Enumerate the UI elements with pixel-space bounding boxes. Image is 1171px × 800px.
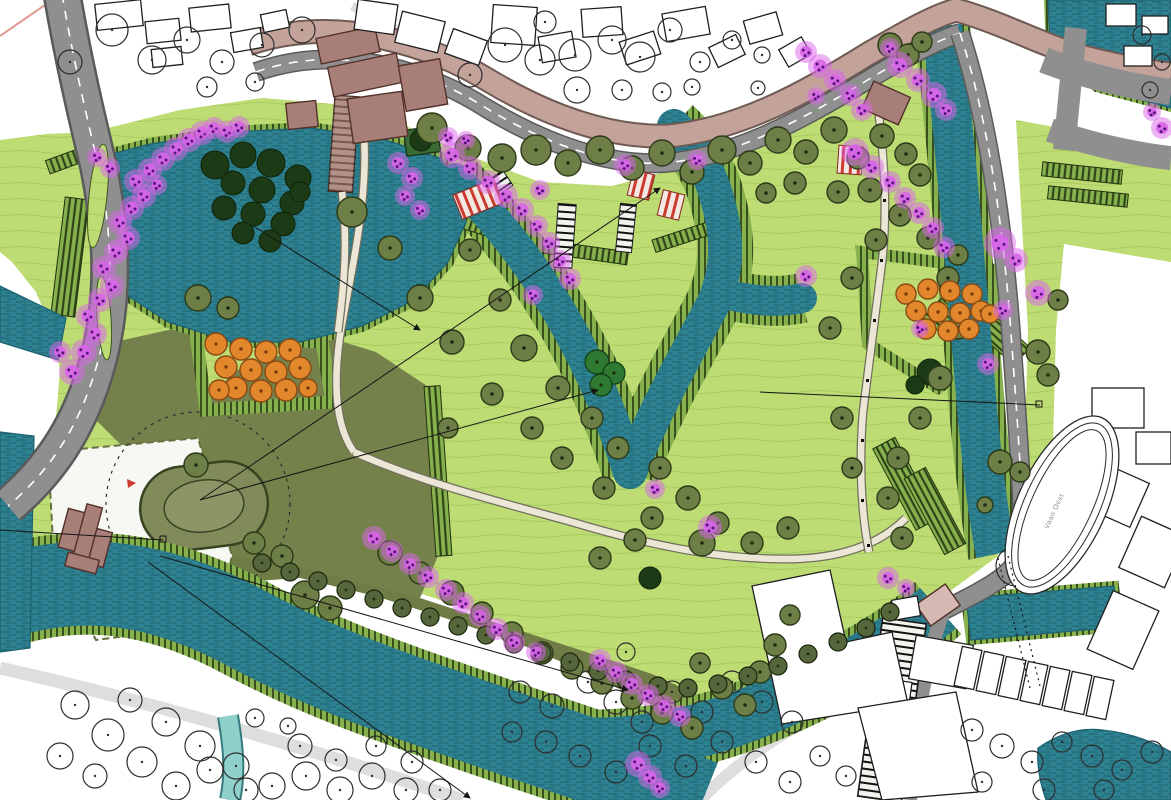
blossom-tree [152, 170, 155, 173]
blossom-tree [649, 694, 652, 697]
blossom-tree [520, 213, 523, 216]
blossom-tree [822, 66, 825, 69]
blossom-tree [185, 137, 188, 140]
park-tree [832, 128, 836, 132]
blossom-tree [478, 618, 481, 621]
blossom-tree [111, 167, 114, 170]
blossom-tree [401, 193, 404, 196]
blossom-tree [802, 49, 805, 52]
blossom-tree [410, 180, 413, 183]
park-tree [698, 661, 702, 665]
blossom-tree [524, 210, 527, 213]
park-tree [388, 246, 392, 250]
park-tree [764, 191, 768, 195]
blossom-tree [56, 349, 59, 352]
context-tree [254, 81, 256, 83]
blossom-tree [656, 785, 659, 788]
blossom-tree [462, 137, 465, 140]
blossom-tree [833, 82, 836, 85]
blossom-tree [486, 185, 489, 188]
park-tree [590, 416, 594, 420]
blossom-tree [467, 139, 470, 142]
context-tree [1001, 745, 1003, 747]
orchard-tree [224, 365, 227, 368]
park-tree [690, 726, 694, 730]
dense-shrub [249, 177, 275, 203]
blossom-tree [940, 244, 943, 247]
blossom-tree [187, 143, 190, 146]
blossom-tree [1153, 111, 1156, 114]
blossom-tree [114, 255, 117, 258]
blossom-tree [100, 265, 103, 268]
blossom-tree [200, 136, 203, 139]
blossom-tree [394, 160, 397, 163]
blossom-tree [676, 713, 679, 716]
blossom-tree [538, 192, 541, 195]
context-tree [544, 21, 546, 23]
park-tree [616, 446, 620, 450]
blossom-tree [140, 193, 143, 196]
context-tree [587, 681, 589, 683]
park-tree [498, 298, 502, 302]
blossom-tree [886, 45, 889, 48]
blossom-tree [481, 615, 484, 618]
blossom-tree [984, 361, 987, 364]
context-tree [755, 761, 757, 763]
blossom-tree [86, 319, 89, 322]
park-tree [896, 456, 900, 460]
blossom-tree [888, 50, 891, 53]
context-tree [69, 61, 71, 63]
blossom-tree [886, 179, 889, 182]
park-tree [560, 456, 564, 460]
hedge-bush [747, 675, 750, 678]
blossom-tree [97, 334, 100, 337]
blossom-tree [884, 575, 887, 578]
blossom-tree [126, 241, 129, 244]
blossom-tree [212, 130, 215, 133]
blossom-tree [159, 156, 162, 159]
park-tree [743, 703, 747, 707]
context-tree [615, 701, 617, 703]
context-tree [579, 755, 581, 757]
blossom-tree [678, 718, 681, 721]
park-tree [303, 593, 307, 597]
blossom-tree [921, 328, 924, 331]
blossom-tree [67, 368, 70, 371]
blossom-tree [446, 139, 449, 142]
blossom-tree [116, 219, 119, 222]
context-tree [59, 755, 61, 757]
blossom-tree [901, 195, 904, 198]
context-tree [74, 704, 76, 706]
blossom-tree [658, 790, 661, 793]
blossom-tree [630, 686, 633, 689]
blossom-tree [406, 561, 409, 564]
blossom-tree [858, 107, 861, 110]
blossom-tree [93, 337, 96, 340]
blossom-tree [929, 91, 932, 94]
hedge-bush [289, 571, 292, 574]
blossom-tree [1148, 109, 1151, 112]
park-tree [886, 496, 890, 500]
park-tree [660, 151, 664, 155]
blossom-tree [112, 249, 115, 252]
blossom-tree [413, 177, 416, 180]
blossom-tree [903, 200, 906, 203]
dense-shrub [639, 567, 661, 589]
orchard-tree [946, 329, 949, 332]
blossom-tree [915, 210, 918, 213]
blossom-tree [403, 198, 406, 201]
orchard-tree [306, 386, 309, 389]
park-tree [226, 306, 230, 310]
blossom-tree [1018, 260, 1021, 263]
context-tree [141, 761, 143, 763]
dense-shrub [906, 376, 924, 394]
blossom-tree [106, 165, 109, 168]
orchard-tree [970, 292, 973, 295]
context-tree [245, 789, 247, 791]
blossom-tree [132, 178, 135, 181]
context-tree [789, 781, 791, 783]
blossom-tree [633, 683, 636, 686]
context-tree [1103, 789, 1105, 791]
blossom-tree [110, 289, 113, 292]
context-tree [375, 745, 377, 747]
blossom-tree [508, 196, 511, 199]
blossom-tree [706, 524, 709, 527]
blossom-tree [223, 129, 226, 132]
park-tree [850, 276, 854, 280]
blossom-tree [623, 167, 626, 170]
orchard-tree [288, 348, 291, 351]
blossom-tree [142, 199, 145, 202]
blossom-tree [999, 307, 1002, 310]
park-tree [998, 460, 1002, 464]
blossom-tree [128, 205, 131, 208]
context-tree [576, 89, 578, 91]
blossom-tree [464, 142, 467, 145]
blossom-tree [914, 77, 917, 80]
blossom-tree [476, 613, 479, 616]
blossom-tree [836, 79, 839, 82]
blossom-tree [130, 238, 133, 241]
context-tree [685, 765, 687, 767]
blossom-tree [1014, 263, 1017, 266]
park-tree [350, 210, 354, 214]
blossom-tree [891, 181, 894, 184]
park-tree [658, 466, 662, 470]
context-tree [411, 761, 413, 763]
park-tree [1056, 298, 1060, 302]
blossom-tree [464, 602, 467, 605]
blossom-tree [461, 605, 464, 608]
hedge-bush [717, 683, 720, 686]
blossom-tree [235, 124, 238, 127]
context-tree [845, 775, 847, 777]
stream [228, 716, 233, 800]
blossom-tree [541, 189, 544, 192]
blossom-tree [889, 577, 892, 580]
blossom-tree [114, 286, 117, 289]
blossom-tree [568, 281, 571, 284]
blossom-tree [571, 278, 574, 281]
hedge-bush [373, 598, 376, 601]
blossom-tree [947, 109, 950, 112]
context-tree [574, 54, 576, 56]
context-tree [439, 789, 441, 791]
blossom-tree [138, 181, 141, 184]
blossom-tree [444, 134, 447, 137]
blossom-tree [807, 275, 810, 278]
park-tree [686, 496, 690, 500]
context-tree [301, 29, 303, 31]
park-tree [788, 613, 792, 617]
blossom-tree [601, 659, 604, 662]
blossom-tree [936, 95, 939, 98]
park-tree [530, 426, 534, 430]
park-tree [522, 346, 526, 350]
blossom-tree [58, 354, 61, 357]
specimen-tree [595, 360, 598, 363]
dense-shrub [232, 222, 254, 244]
park-tree [194, 463, 198, 467]
blossom-tree [490, 182, 493, 185]
context-tree [129, 699, 131, 701]
blossom-tree [665, 705, 668, 708]
context-tree [107, 734, 109, 736]
blossom-tree [851, 94, 854, 97]
blossom-tree [561, 260, 564, 263]
context-tree [981, 781, 983, 783]
blossom-tree [198, 130, 201, 133]
blossom-tree [535, 228, 538, 231]
blossom-tree [424, 574, 427, 577]
context-tree [761, 54, 763, 56]
blossom-tree [146, 167, 149, 170]
orchard-tree [936, 310, 939, 313]
masterplan-image: Vaan Oost [0, 0, 1171, 800]
blossom-tree [945, 246, 948, 249]
blossom-tree [1158, 125, 1161, 128]
blossom-tree [146, 196, 149, 199]
blossom-tree [818, 69, 821, 72]
park-tree [850, 466, 854, 470]
blossom-tree [529, 292, 532, 295]
park-tree [750, 541, 754, 545]
park-tree [918, 416, 922, 420]
context-tree [669, 29, 671, 31]
context-tree [405, 789, 407, 791]
blossom-tree [547, 245, 550, 248]
context-tree [621, 89, 623, 91]
park-tree [880, 134, 884, 138]
blossom-tree [874, 167, 877, 170]
blossom-tree [95, 159, 98, 162]
blossom-tree [812, 93, 815, 96]
blossom-tree [860, 112, 863, 115]
orchard-tree [234, 386, 237, 389]
context-tree [371, 775, 373, 777]
blossom-tree [172, 146, 175, 149]
blossom-tree [617, 671, 620, 674]
blossom-tree [916, 326, 919, 329]
blossom-tree [421, 209, 424, 212]
blossom-tree [888, 184, 891, 187]
blossom-tree [1035, 296, 1038, 299]
blossom-tree [1003, 243, 1006, 246]
context-tree [519, 691, 521, 693]
blossom-tree [153, 182, 156, 185]
context-tree [1141, 34, 1143, 36]
context-tree [1061, 741, 1063, 743]
context-tree [1043, 789, 1045, 791]
blossom-tree [902, 65, 905, 68]
blossom-tree [942, 107, 945, 110]
blossom-tree [459, 600, 462, 603]
context-tree [649, 745, 651, 747]
blossom-tree [376, 538, 379, 541]
context-tree [971, 729, 973, 731]
context-tree [699, 61, 701, 63]
blossom-tree [1163, 127, 1166, 130]
blossom-tree [612, 669, 615, 672]
park-tree [836, 190, 840, 194]
context-tree [1161, 61, 1163, 63]
park-tree [758, 670, 762, 674]
hedge-bush [865, 627, 868, 630]
blossom-tree [106, 268, 109, 271]
blossom-tree [536, 187, 539, 190]
park-tree [280, 554, 284, 558]
blossom-tree [804, 54, 807, 57]
park-tree [468, 248, 472, 252]
context-tree [221, 61, 223, 63]
park-tree [773, 643, 777, 647]
blossom-tree [662, 708, 665, 711]
park-tree [598, 148, 602, 152]
blossom-tree [406, 195, 409, 198]
blossom-tree [96, 297, 99, 300]
park-tree [918, 173, 922, 177]
orchard-tree [298, 366, 301, 369]
dense-shrub [290, 182, 310, 202]
park-tree [328, 606, 332, 610]
context-tree [209, 769, 211, 771]
blossom-tree [661, 787, 664, 790]
orchard-tree [217, 388, 220, 391]
blossom-tree [802, 273, 805, 276]
hedge-bush [317, 580, 320, 583]
park-tree [196, 296, 200, 300]
blossom-tree [997, 247, 1000, 250]
blossom-tree [429, 576, 432, 579]
blossom-tree [653, 491, 656, 494]
blossom-tree [850, 148, 853, 151]
park-tree [900, 536, 904, 540]
context-tree [731, 39, 733, 41]
hedge-bush [261, 562, 264, 565]
orchard-tree [904, 292, 907, 295]
blossom-tree [929, 225, 932, 228]
blossom-tree [372, 541, 375, 544]
context-tree [671, 691, 673, 693]
context-tree [235, 765, 237, 767]
context-tree [1031, 761, 1033, 763]
blossom-tree [681, 715, 684, 718]
blossom-tree [931, 230, 934, 233]
blossom-tree [502, 193, 505, 196]
blossom-tree [466, 165, 469, 168]
blossom-tree [545, 240, 548, 243]
blossom-tree [532, 649, 535, 652]
park-tree [418, 296, 422, 300]
park-tree [450, 340, 454, 344]
orchard-tree [284, 388, 287, 391]
blossom-tree [454, 155, 457, 158]
dense-shrub [230, 142, 256, 168]
hedge-bush [777, 665, 780, 668]
context-tree [206, 86, 208, 88]
park-tree [556, 386, 560, 390]
blossom-tree [1040, 293, 1043, 296]
masterplan-canvas: Vaan Oost [0, 0, 1171, 800]
blossom-tree [442, 587, 445, 590]
blossom-tree [648, 780, 651, 783]
blossom-tree [1150, 114, 1153, 117]
context-tree [305, 775, 307, 777]
park-tree [840, 416, 844, 420]
park-tree [566, 161, 570, 165]
blossom-tree [155, 187, 158, 190]
context-tree [641, 721, 643, 723]
hedge-bush [345, 589, 348, 592]
blossom-tree [210, 125, 213, 128]
blossom-tree [1033, 289, 1036, 292]
blossom-tree [537, 651, 540, 654]
orchard-tree [958, 311, 961, 314]
context-tree [615, 771, 617, 773]
blossom-tree [904, 590, 907, 593]
blossom-tree [534, 654, 537, 657]
blossom-tree [920, 80, 923, 83]
orchard-tree [214, 342, 217, 345]
blossom-tree [646, 774, 649, 777]
context-tree [639, 56, 641, 58]
blossom-tree [986, 366, 989, 369]
context-tree [504, 44, 506, 46]
blossom-tree [447, 151, 450, 154]
context-tree [691, 86, 693, 88]
blossom-tree [644, 692, 647, 695]
blossom-tree [370, 535, 373, 538]
park-tree [946, 276, 950, 280]
context-tree [819, 755, 821, 757]
blossom-tree [942, 249, 945, 252]
blossom-tree [918, 331, 921, 334]
context-tree [545, 741, 547, 743]
orchard-tree [948, 289, 951, 292]
blossom-tree [550, 242, 553, 245]
blossom-tree [920, 212, 923, 215]
context-tree [1091, 755, 1093, 757]
park-tree [630, 696, 634, 700]
blossom-tree [416, 207, 419, 210]
context-tree [625, 651, 627, 653]
blossom-tree [558, 263, 561, 266]
blossom-tree [897, 68, 900, 71]
